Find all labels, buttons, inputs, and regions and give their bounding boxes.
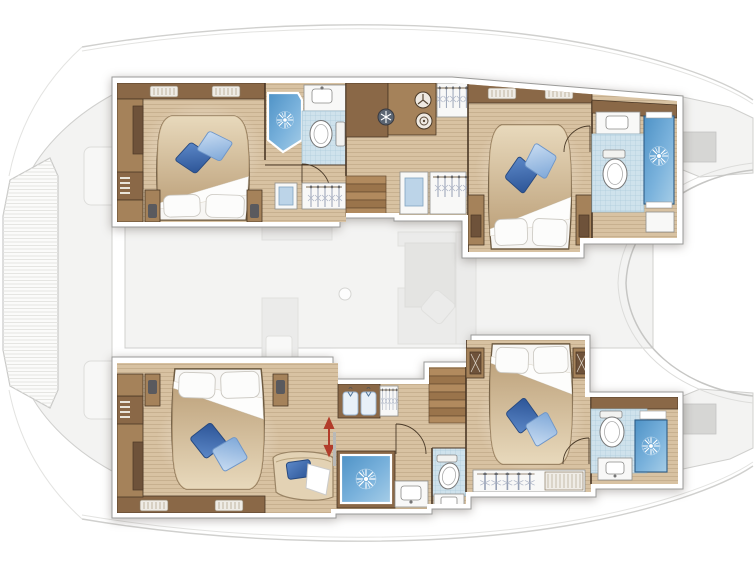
cabinet-strip <box>591 397 678 409</box>
stairs-icon <box>429 368 466 423</box>
shelf-unit <box>117 172 143 200</box>
toilet-tank <box>437 455 457 462</box>
nightstand-panel <box>579 215 589 237</box>
faucet <box>614 475 617 478</box>
toilet-tank <box>603 150 625 158</box>
nightstand-item <box>276 380 285 394</box>
nightstand-item <box>148 380 157 394</box>
nightstand-panel <box>471 215 481 237</box>
floorplan-canvas <box>0 0 755 566</box>
cabinet-strip <box>117 83 265 99</box>
washbasin <box>606 116 628 129</box>
catamaran-floorplan <box>0 0 755 566</box>
washbasin <box>312 89 332 103</box>
shower-sill <box>646 112 672 118</box>
nightstand-item <box>148 204 157 218</box>
shirt-icon <box>361 388 376 416</box>
starboard-forward-toilet-room <box>432 448 466 508</box>
shower-sill <box>640 411 666 419</box>
mast-step <box>339 288 351 300</box>
vanity-basin <box>279 187 293 205</box>
faucet <box>409 500 412 503</box>
stairs-icon <box>346 176 386 216</box>
cabinet-panel <box>133 106 143 154</box>
nightstand-item <box>250 204 259 218</box>
shelf-unit <box>117 396 143 424</box>
faucet <box>320 86 323 89</box>
hanging-locker <box>430 172 466 214</box>
washbasin <box>401 486 421 500</box>
side-cabinet <box>117 200 143 222</box>
shower-sill <box>646 202 672 208</box>
side-cabinet <box>117 374 143 396</box>
cabinet-panel <box>133 442 143 490</box>
shirt-icon <box>343 388 358 416</box>
washbasin <box>606 462 624 474</box>
port-forward-head <box>265 83 346 209</box>
toilet-tank <box>336 122 345 146</box>
sliding-door-track <box>333 432 336 466</box>
trampoline-netting <box>3 158 58 408</box>
starboard-hull <box>112 335 687 520</box>
vanity-basin <box>405 178 423 206</box>
head-cabinet <box>646 212 674 232</box>
